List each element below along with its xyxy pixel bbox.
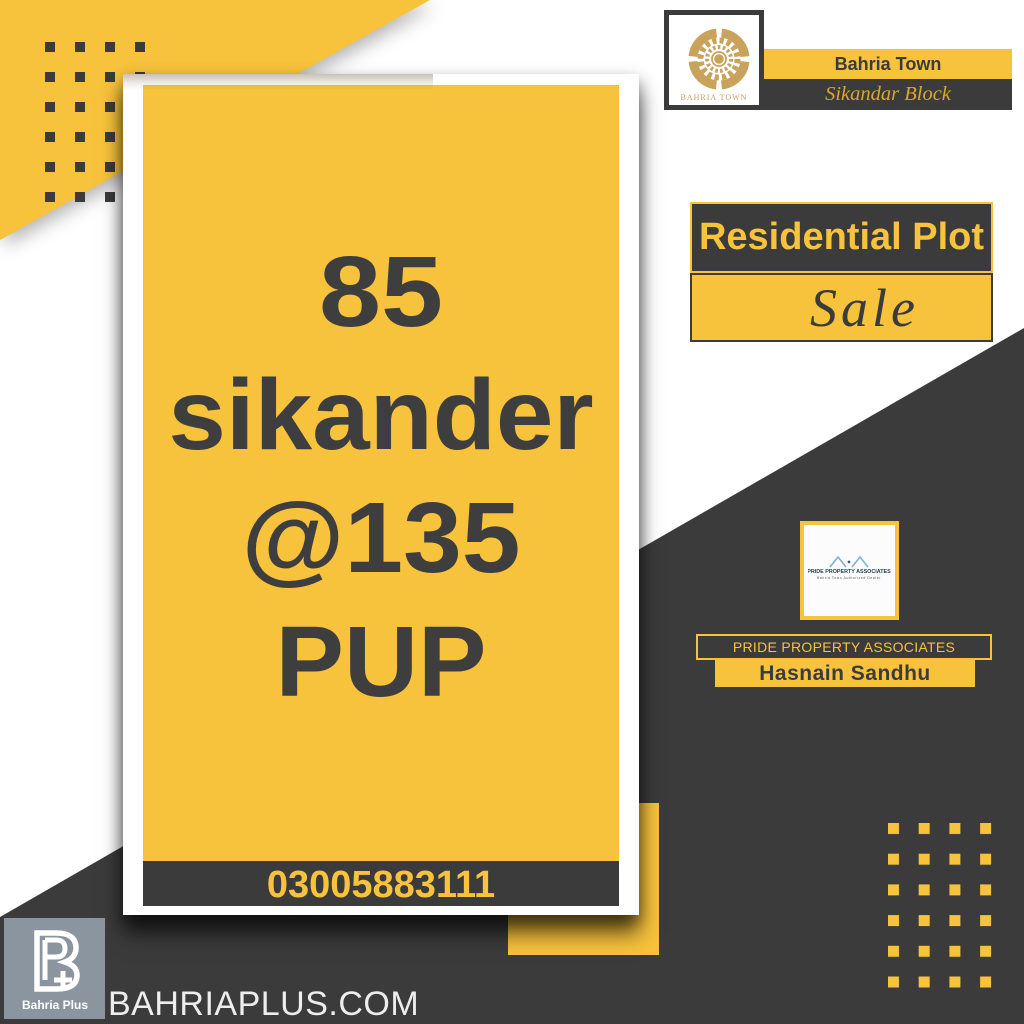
svg-text:PRIDE PROPERTY ASSOCIATES: PRIDE PROPERTY ASSOCIATES xyxy=(808,569,891,575)
svg-text:Bahria Plus: Bahria Plus xyxy=(22,998,88,1012)
svg-text:Bahria Town Authorized Dealer: Bahria Town Authorized Dealer xyxy=(817,576,881,580)
svg-text:◆: ◆ xyxy=(846,559,851,564)
